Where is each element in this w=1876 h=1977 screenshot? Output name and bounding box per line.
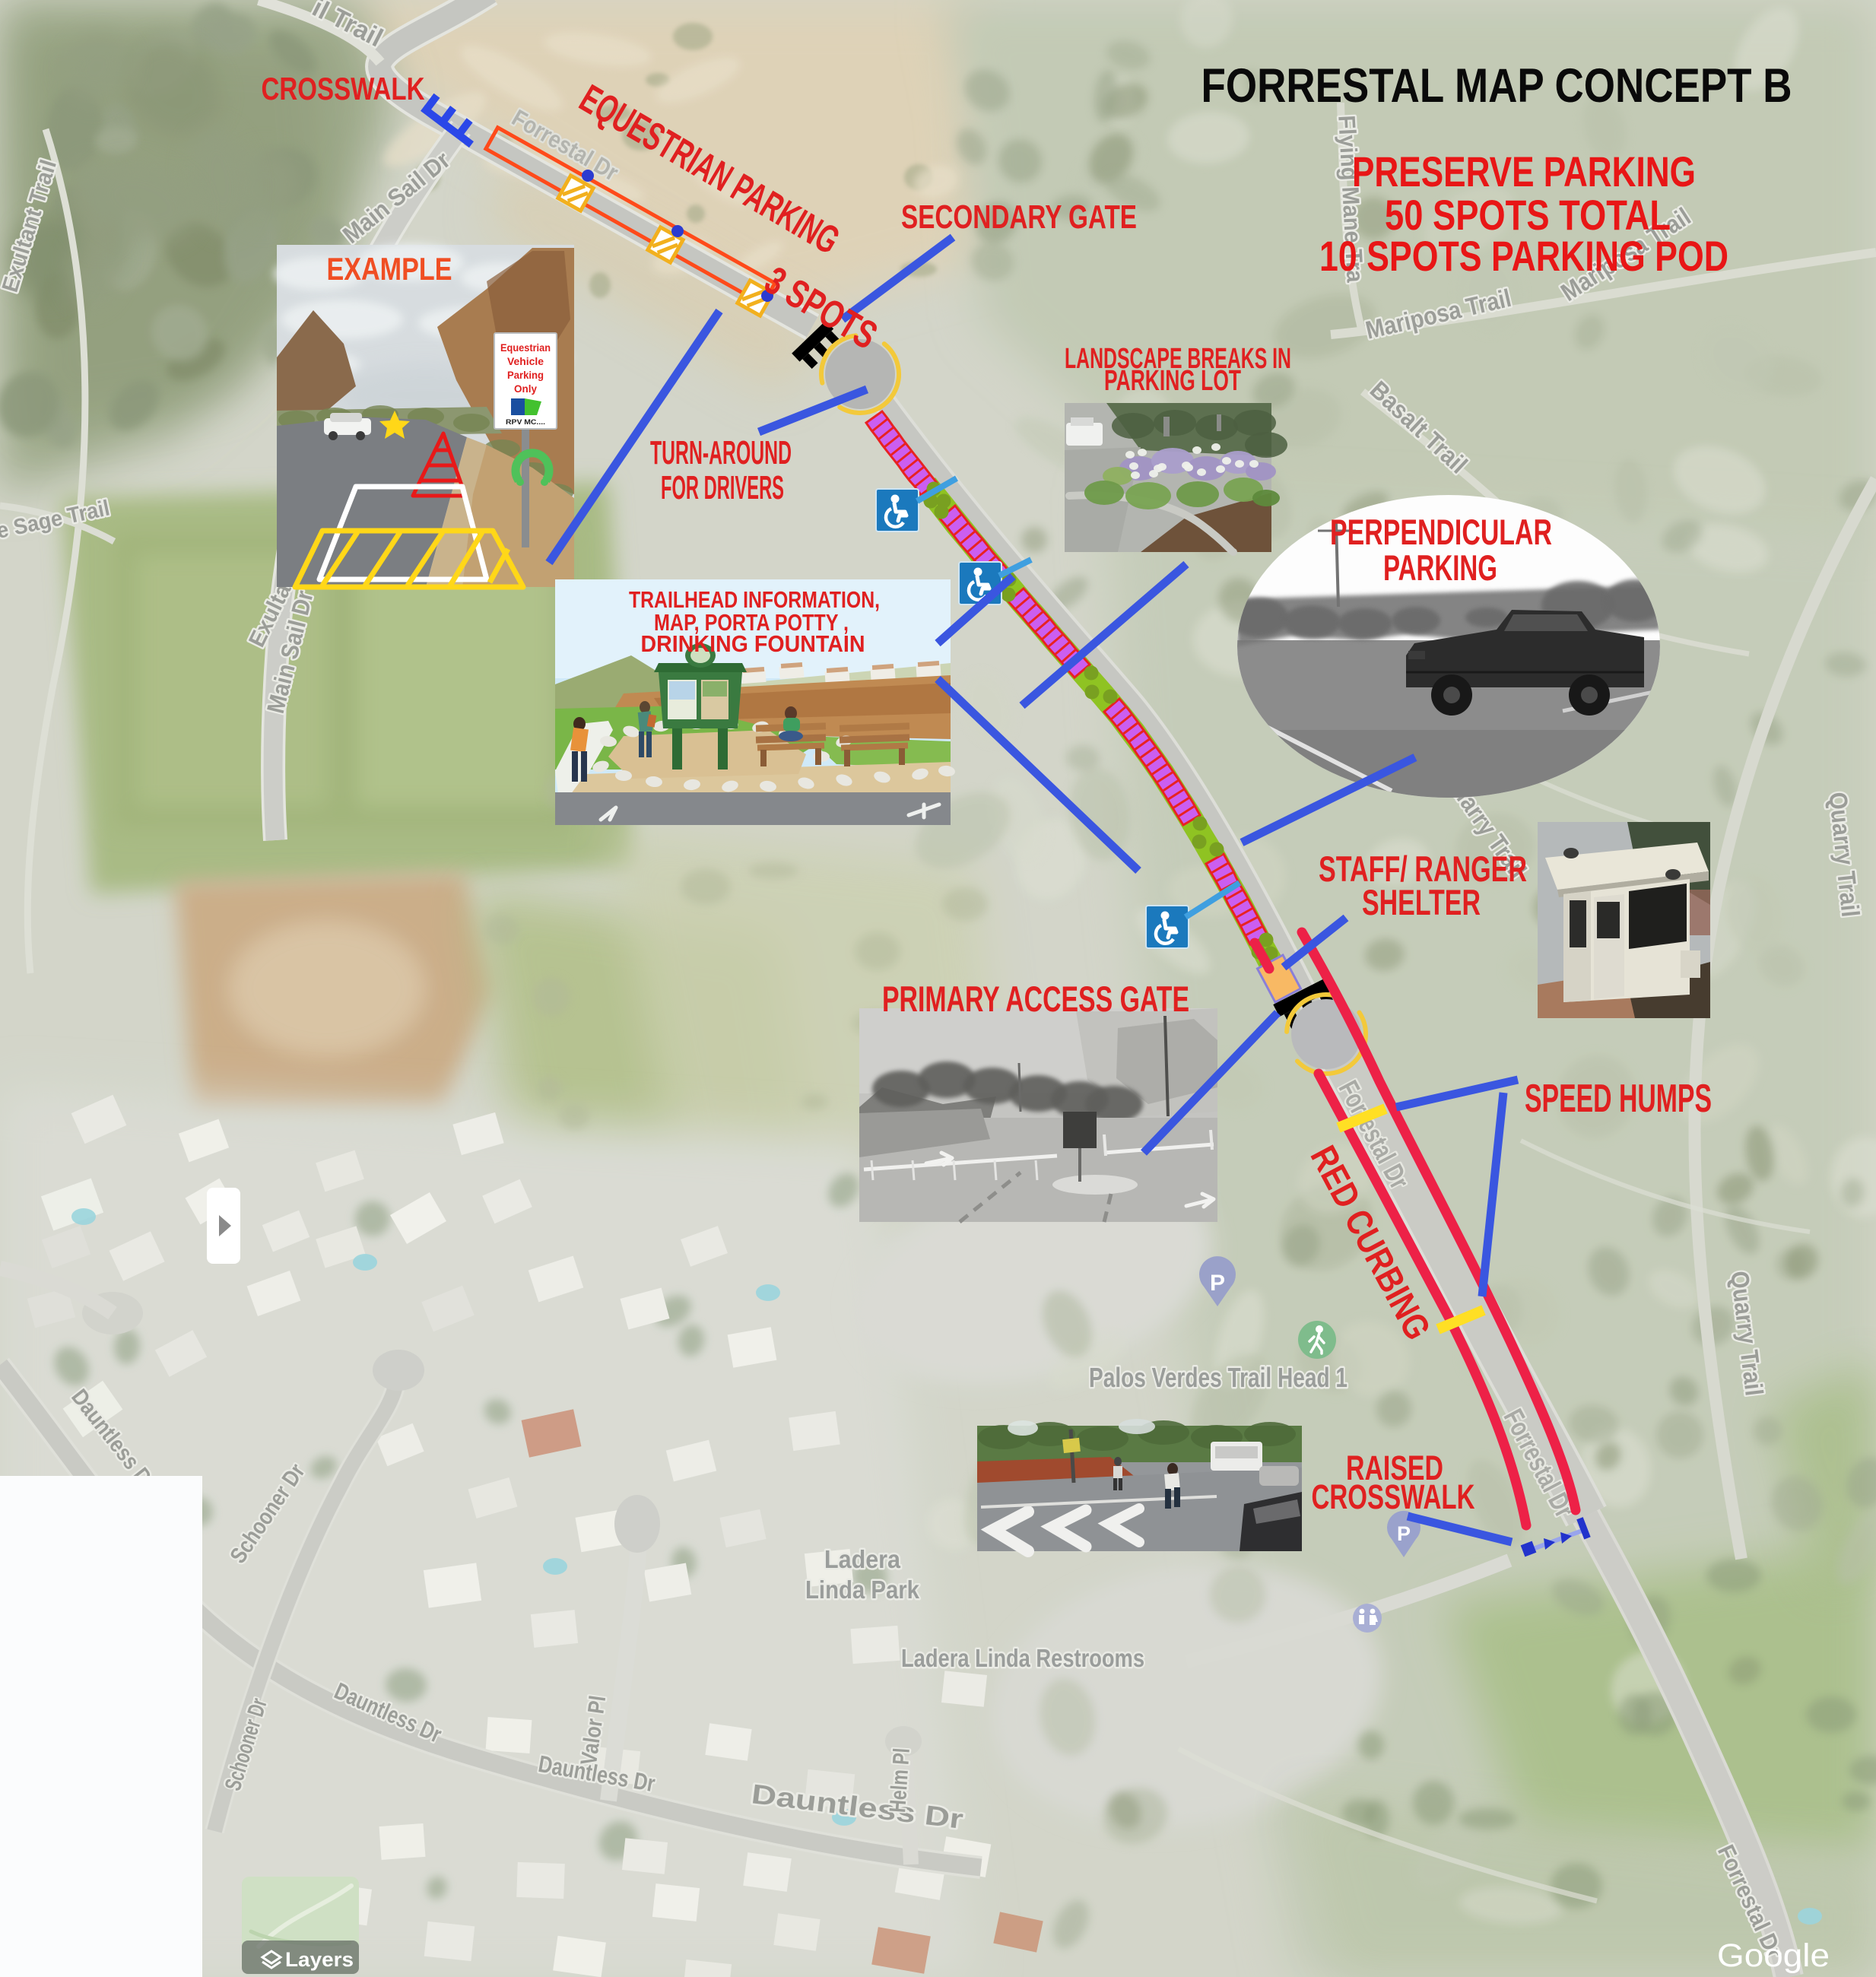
svg-text:FOR DRIVERS: FOR DRIVERS	[661, 469, 784, 506]
svg-text:PARKING LOT: PARKING LOT	[1104, 365, 1241, 397]
svg-text:CROSSWALK: CROSSWALK	[1312, 1477, 1475, 1516]
svg-text:PRIMARY ACCESS GATE: PRIMARY ACCESS GATE	[882, 979, 1189, 1019]
svg-text:CROSSWALK: CROSSWALK	[262, 71, 425, 106]
svg-text:RPV MC....: RPV MC....	[506, 418, 545, 426]
svg-text:SECONDARY GATE: SECONDARY GATE	[901, 198, 1137, 236]
svg-text:SHELTER: SHELTER	[1362, 882, 1481, 922]
svg-text:Layers: Layers	[285, 1948, 354, 1971]
svg-text:Vehicle: Vehicle	[507, 356, 544, 367]
svg-text:P: P	[1210, 1271, 1225, 1296]
svg-text:10 SPOTS PARKING POD: 10 SPOTS PARKING POD	[1319, 232, 1728, 280]
svg-text:Only: Only	[514, 383, 537, 395]
svg-text:PARKING: PARKING	[1383, 547, 1497, 588]
svg-text:Equestrian: Equestrian	[500, 342, 551, 354]
svg-text:DRINKING FOUNTAIN: DRINKING FOUNTAIN	[641, 630, 865, 657]
svg-text:SPEED HUMPS: SPEED HUMPS	[1525, 1077, 1712, 1121]
svg-text:Google: Google	[1717, 1937, 1830, 1974]
svg-text:TURN-AROUND: TURN-AROUND	[650, 434, 792, 471]
svg-text:Parking: Parking	[507, 370, 544, 381]
svg-text:PRESERVE PARKING: PRESERVE PARKING	[1352, 148, 1696, 195]
svg-text:EXAMPLE: EXAMPLE	[327, 251, 452, 287]
svg-text:P: P	[1397, 1522, 1411, 1545]
svg-text:PERPENDICULAR: PERPENDICULAR	[1330, 512, 1552, 552]
svg-text:FORRESTAL MAP CONCEPT B: FORRESTAL MAP CONCEPT B	[1201, 59, 1792, 113]
